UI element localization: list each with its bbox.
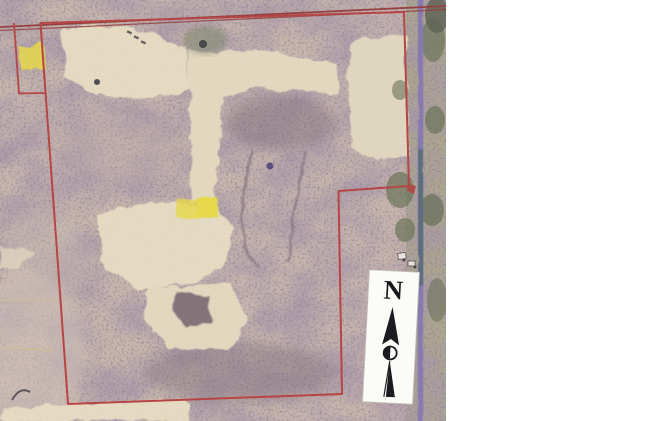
north-arrow: N <box>363 270 420 404</box>
north-label: N <box>383 275 405 306</box>
parcel-map-page: N <box>0 0 649 421</box>
right-margin <box>446 0 649 421</box>
aerial-photo: N <box>0 0 649 421</box>
